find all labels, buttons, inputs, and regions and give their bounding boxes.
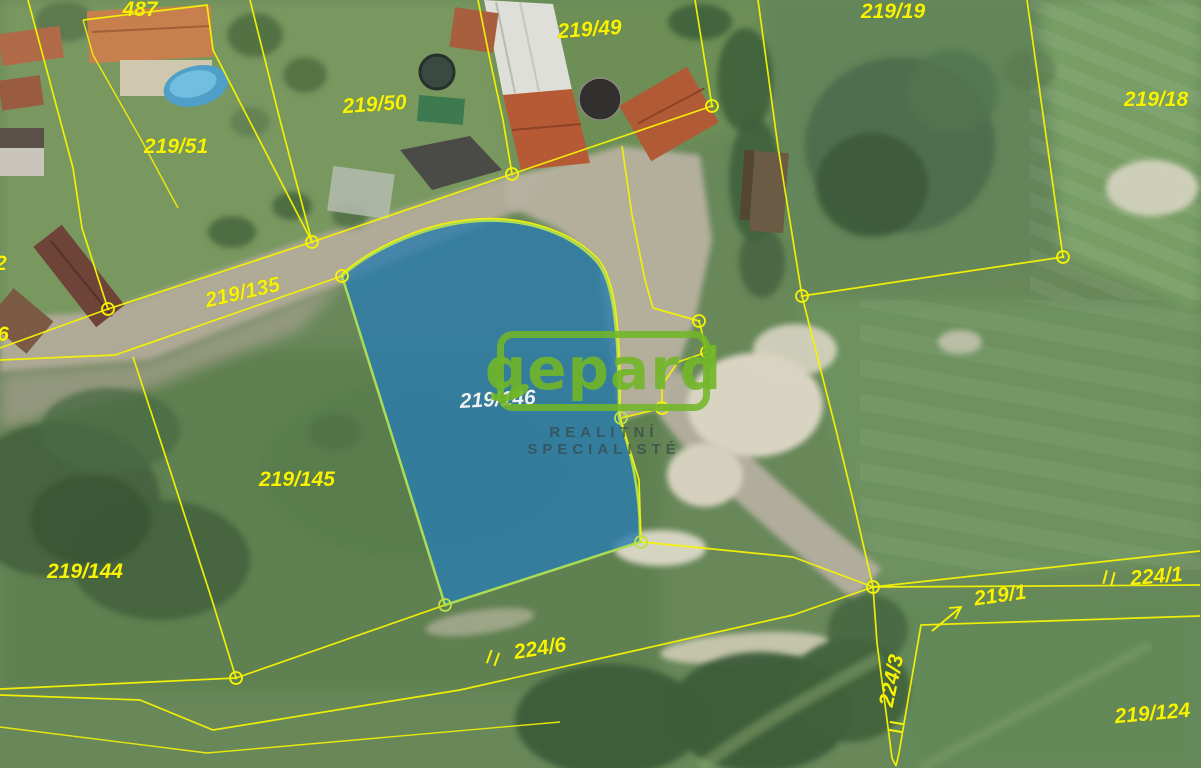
map-canvas: 487219/49219/50219/51219/19219/18219/135…: [0, 0, 1201, 768]
parcel-label-219-18: 219/18: [1123, 88, 1189, 111]
mow-stripes-e: [860, 300, 1201, 570]
round-tank: [579, 78, 621, 120]
parcel-label-219-49: 219/49: [556, 16, 623, 44]
green-shed: [417, 95, 465, 125]
parcel-label-219-51: 219/51: [143, 135, 208, 158]
parcel-label-2: 2: [0, 252, 7, 275]
mow-stripes-ne: [1030, 0, 1201, 300]
trampoline: [420, 55, 454, 89]
roof-section: [449, 7, 498, 53]
parcel-label-487: 487: [121, 0, 158, 21]
parcel-label-219-144: 219/144: [46, 560, 123, 583]
outbuilding: [0, 75, 44, 111]
parcel-label-219-19: 219/19: [860, 0, 926, 23]
parcel-label-219-50: 219/50: [341, 91, 408, 119]
wood-stack: [749, 151, 788, 233]
parcel-label-219-145: 219/145: [258, 468, 335, 491]
cadastral-map: 487219/49219/50219/51219/19219/18219/135…: [0, 0, 1201, 768]
greenhouse: [327, 166, 395, 219]
parcel-label-6: 6: [0, 323, 9, 346]
parcel-label-224-1: 224/1: [1128, 563, 1183, 591]
